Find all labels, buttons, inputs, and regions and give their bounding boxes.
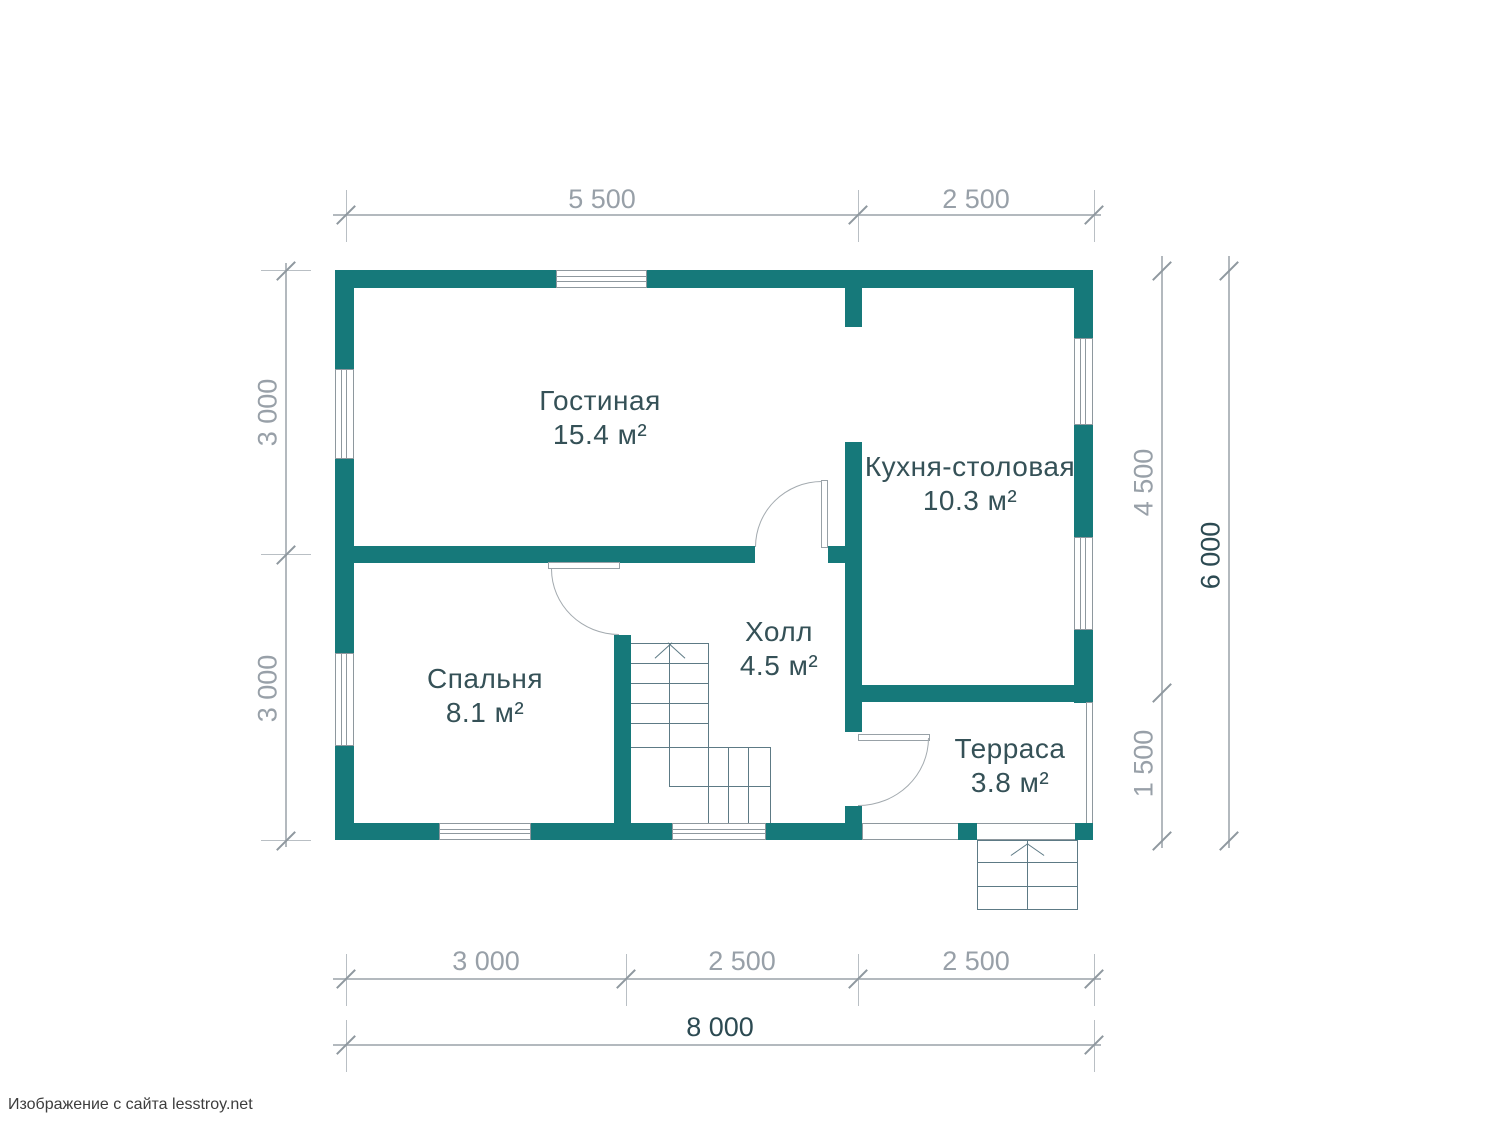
room-name-kitchen: Кухня-столовая: [820, 450, 1120, 484]
dim-label-bottom-3: 2 500: [906, 946, 1046, 977]
room-label-bedroom: Спальня 8.1 м²: [335, 662, 635, 730]
source-credit: Изображение с сайта lesstroy.net: [8, 1096, 253, 1114]
door-leaf-bedroom: [548, 562, 620, 569]
room-name-hall: Холл: [629, 615, 929, 649]
dim-label-right-1: 4 500: [1129, 413, 1160, 553]
dim-line-right-inner: [1161, 256, 1163, 848]
wall-right-upper: [1074, 270, 1093, 338]
room-area-hall: 4.5 м²: [629, 649, 929, 683]
wall-top-left: [335, 270, 556, 288]
stair-winder-line: [748, 747, 749, 823]
room-name-living: Гостиная: [450, 384, 750, 418]
wall-left-upper: [335, 270, 354, 369]
room-label-kitchen: Кухня-столовая 10.3 м²: [820, 450, 1120, 518]
stair-winder-line: [728, 747, 729, 823]
terrace-post-corner: [1075, 823, 1093, 840]
wall-bottom-middle: [531, 823, 672, 840]
room-label-living: Гостиная 15.4 м²: [450, 384, 750, 452]
stair-tread: [631, 683, 709, 684]
dim-label-top-1: 5 500: [532, 184, 672, 215]
room-label-hall: Холл 4.5 м²: [629, 615, 929, 683]
dim-label-right-2: 1 500: [1129, 694, 1160, 834]
room-area-bedroom: 8.1 м²: [335, 696, 635, 730]
window-kitchen-right-lower: [1074, 537, 1093, 630]
dim-line-bottom-total: [333, 1044, 1101, 1046]
stair-winder-edge: [770, 747, 771, 823]
wall-living-bedroom: [354, 546, 755, 563]
wall-left-middle: [335, 459, 354, 653]
window-kitchen-right-upper: [1074, 338, 1093, 425]
room-area-kitchen: 10.3 м²: [820, 484, 1120, 518]
dim-label-bottom-2: 2 500: [672, 946, 812, 977]
room-area-living: 15.4 м²: [450, 418, 750, 452]
terrace-post-middle: [958, 823, 977, 840]
room-area-terrace: 3.8 м²: [860, 766, 1160, 800]
dim-label-left-2: 3 000: [253, 619, 284, 759]
dim-label-bottom-total: 8 000: [650, 1012, 790, 1043]
dim-label-right-total: 6 000: [1196, 486, 1227, 626]
dim-label-bottom-1: 3 000: [416, 946, 556, 977]
stair-tread: [631, 703, 709, 704]
stair-tread: [631, 723, 709, 724]
dim-label-top-2: 2 500: [906, 184, 1046, 215]
entry-steps-center-line: [1027, 840, 1028, 910]
window-bedroom-bottom: [439, 823, 531, 840]
stair-landing-middle: [669, 786, 771, 787]
stair-landing-top: [631, 747, 771, 748]
wall-terrace-door-post: [845, 806, 862, 840]
room-name-bedroom: Спальня: [335, 662, 635, 696]
room-name-terrace: Терраса: [860, 732, 1160, 766]
window-living-top: [556, 270, 647, 288]
dim-label-left-1: 3 000: [253, 343, 284, 483]
floor-plan: Гостиная 15.4 м² Кухня-столовая 10.3 м² …: [0, 0, 1500, 1125]
terrace-edge-bottom: [862, 823, 1093, 840]
door-arc-bedroom: [551, 569, 619, 635]
dim-line-bottom-inner: [333, 978, 1101, 980]
room-label-terrace: Терраса 3.8 м²: [860, 732, 1160, 800]
wall-kitchen-stub-top: [845, 288, 862, 327]
door-arc-hall: [755, 481, 822, 547]
window-stairs-bottom: [672, 823, 766, 840]
wall-bottom-left: [335, 823, 439, 840]
dim-line-right-outer: [1228, 256, 1230, 848]
wall-top-right: [647, 270, 1093, 288]
wall-kitchen-terrace: [845, 685, 1093, 702]
window-living-left: [335, 369, 354, 459]
